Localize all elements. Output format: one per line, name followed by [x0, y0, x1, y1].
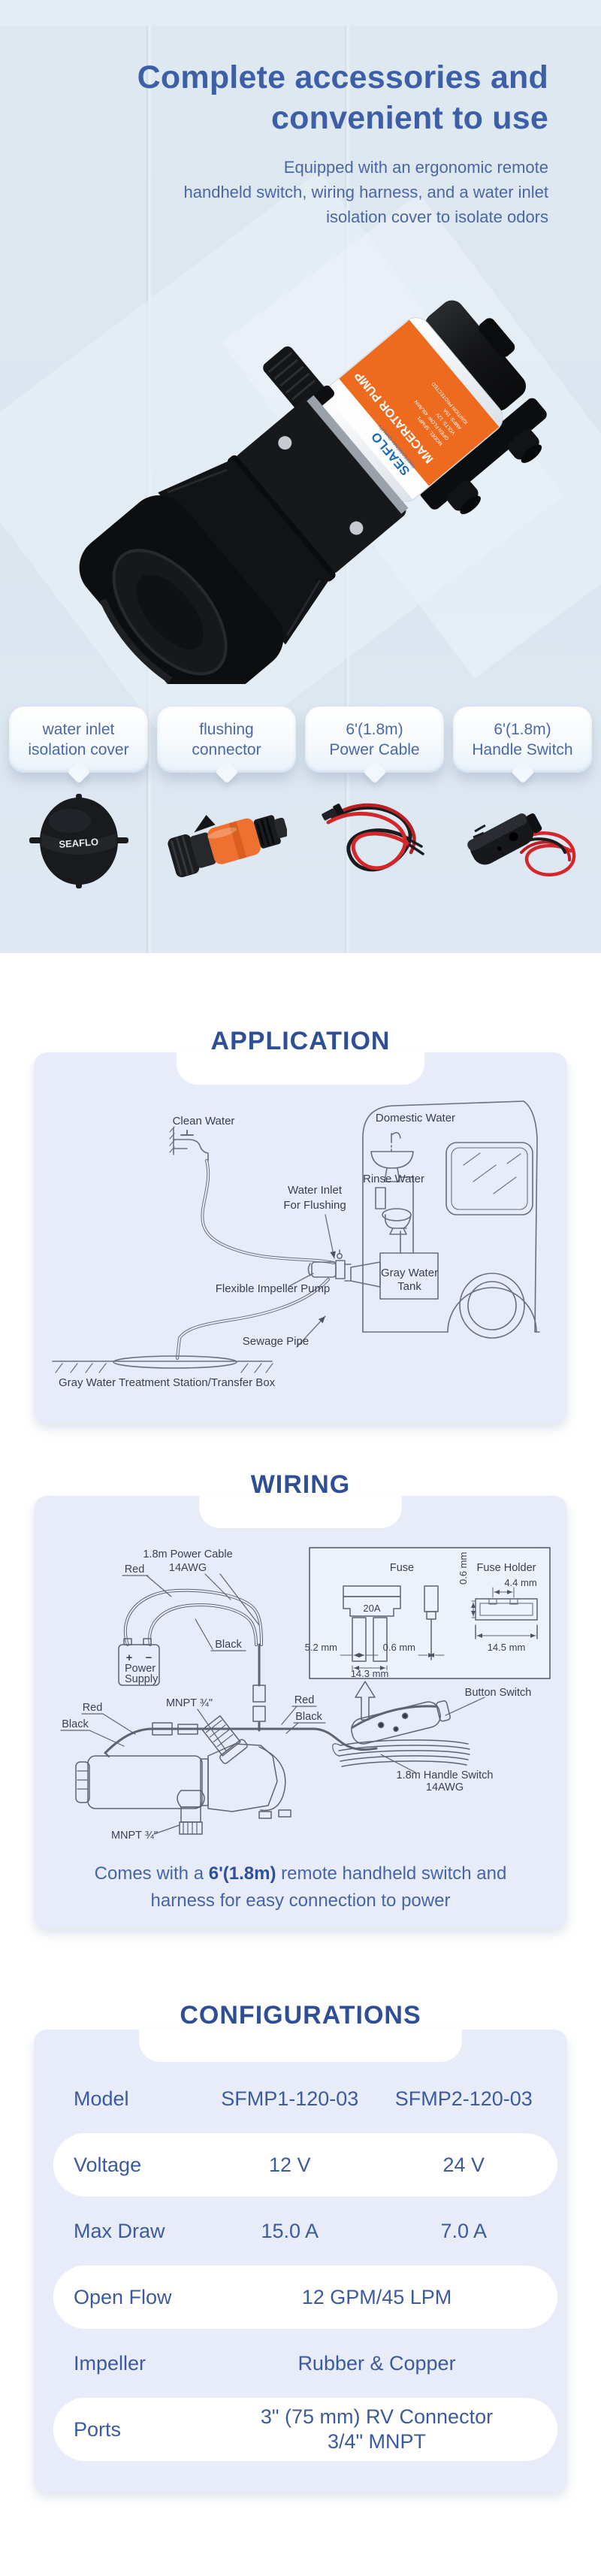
dim-5-2: 5.2 mm — [305, 1642, 337, 1653]
pump-product-image: SEAFLO PROFESSIONAL QUALITY MACERATOR PU… — [53, 248, 548, 684]
dim-14-3: 14.3 mm — [351, 1668, 389, 1679]
table-row-ports: Ports 3" (75 mm) RV Connector 3/4" MNPT — [34, 2396, 567, 2462]
wiring-caption: Comes with a 6'(1.8m) remote handheld sw… — [34, 1860, 567, 1915]
label-mnpt-bottom: MNPT ¾" — [111, 1830, 158, 1842]
table-row-open-flow: Open Flow 12 GPM/45 LPM — [34, 2264, 567, 2330]
label-tank-1: Gray Water — [381, 1267, 438, 1279]
label-black-mid: Black — [295, 1711, 322, 1723]
label-handle-switch-2: 14AWG — [426, 1781, 464, 1794]
label-handle-switch-1: 1.8m Handle Switch — [397, 1769, 494, 1781]
row-value: 3" (75 mm) RV Connector 3/4" MNPT — [203, 2405, 551, 2454]
label-sewage-pipe: Sewage Pipe — [243, 1335, 309, 1348]
label-fuse-holder: Fuse Holder — [477, 1562, 536, 1574]
configurations-table: Model SFMP1-120-03 SFMP2-120-03 Voltage … — [34, 2066, 567, 2462]
accessory-handle-switch: 6'(1.8m) Handle Switch — [453, 707, 592, 890]
accessory-bubble: flushing connector — [157, 707, 296, 773]
handle-switch-image — [463, 792, 583, 890]
row-value: Rubber & Copper — [203, 2352, 551, 2375]
accessory-bubble: 6'(1.8m) Handle Switch — [453, 707, 592, 773]
accessory-isolation-cover: water inlet isolation cover SEAFLO — [9, 707, 148, 890]
configurations-panel: Model SFMP1-120-03 SFMP2-120-03 Voltage … — [34, 2030, 567, 2492]
label-clean-water: Clean Water — [173, 1115, 235, 1128]
label-fuse: Fuse — [390, 1562, 414, 1574]
label-rinse-water: Rinse Water — [363, 1173, 424, 1185]
row-value-1: 12 V — [203, 2154, 377, 2177]
product-page: Complete accessories and convenient to u… — [0, 0, 601, 2576]
configurations-title: CONFIGURATIONS — [0, 2001, 601, 2030]
row-label: Open Flow — [74, 2286, 203, 2309]
label-water-inlet-1: Water Inlet — [288, 1184, 343, 1197]
row-value-1: 15.0 A — [203, 2220, 377, 2243]
accessory-flushing-connector: flushing connector — [157, 707, 296, 890]
dim-0-6: 0.6 mm — [383, 1642, 415, 1653]
wiring-diagram: 1.8m Power Cable 14AWG Red Black + − Pow… — [34, 1526, 567, 1857]
dim-14-5: 14.5 mm — [488, 1642, 526, 1653]
label-water-inlet-2: For Flushing — [283, 1199, 346, 1212]
row-label: Model — [74, 2087, 203, 2111]
label-domestic-water: Domestic Water — [376, 1112, 455, 1125]
flushing-connector-image — [167, 792, 287, 890]
label-power-cable-1: 1.8m Power Cable — [143, 1548, 232, 1560]
row-label: Impeller — [74, 2352, 203, 2375]
application-diagram: Clean Water Domestic Water Rinse Water W… — [34, 1067, 567, 1423]
label-black-left: Black — [62, 1718, 89, 1730]
row-value: 12 GPM/45 LPM — [203, 2286, 551, 2309]
hero-title-line1: Complete accessories and — [0, 57, 548, 98]
row-label: Ports — [74, 2418, 203, 2441]
hero-subtitle: Equipped with an ergonomic remote handhe… — [0, 155, 548, 229]
isolation-cover-image: SEAFLO — [19, 792, 139, 890]
table-row-impeller: Impeller Rubber & Copper — [34, 2330, 567, 2396]
accessory-power-cable: 6'(1.8m) Power Cable — [305, 707, 444, 890]
label-tank-2: Tank — [397, 1280, 421, 1293]
label-button-switch: Button Switch — [465, 1687, 532, 1699]
caption-length: 6'(1.8m) — [209, 1863, 276, 1884]
accessory-bubble: 6'(1.8m) Power Cable — [305, 707, 444, 773]
label-red-left: Red — [83, 1702, 103, 1714]
label-pump: Flexible Impeller Pump — [216, 1282, 331, 1295]
label-treatment: Gray Water Treatment Station/Transfer Bo… — [59, 1376, 276, 1389]
accessories-row: water inlet isolation cover SEAFLO flush… — [9, 707, 592, 890]
accessory-bubble: water inlet isolation cover — [9, 707, 148, 773]
dim-0-6-holder: 0.6 mm — [458, 1552, 469, 1585]
dim-4-4: 4.4 mm — [504, 1577, 536, 1588]
label-power-cable-2: 14AWG — [169, 1562, 207, 1574]
label-red-mid: Red — [294, 1694, 315, 1706]
table-row-max-draw: Max Draw 15.0 A 7.0 A — [34, 2198, 567, 2264]
table-row-voltage: Voltage 12 V 24 V — [34, 2132, 567, 2198]
row-value-2: 7.0 A — [377, 2220, 551, 2243]
panel-notch — [199, 1495, 402, 1528]
hero-title-line2: convenient to use — [0, 98, 548, 138]
row-value-2: 24 V — [377, 2154, 551, 2177]
row-label: Max Draw — [74, 2220, 203, 2243]
panel-notch — [139, 2029, 462, 2062]
label-red-top: Red — [125, 1563, 145, 1576]
row-value-1: SFMP1-120-03 — [203, 2087, 377, 2111]
row-label: Voltage — [74, 2154, 203, 2177]
label-mnpt-mid: MNPT ¾" — [166, 1697, 213, 1709]
label-fuse-rating: 20A — [363, 1603, 380, 1614]
label-power-2: Supply — [125, 1673, 159, 1685]
hero-title: Complete accessories and convenient to u… — [0, 57, 548, 138]
power-cable-image — [315, 792, 435, 890]
table-row-model: Model SFMP1-120-03 SFMP2-120-03 — [34, 2066, 567, 2132]
label-black-top: Black — [215, 1639, 242, 1651]
row-value-2: SFMP2-120-03 — [377, 2087, 551, 2111]
